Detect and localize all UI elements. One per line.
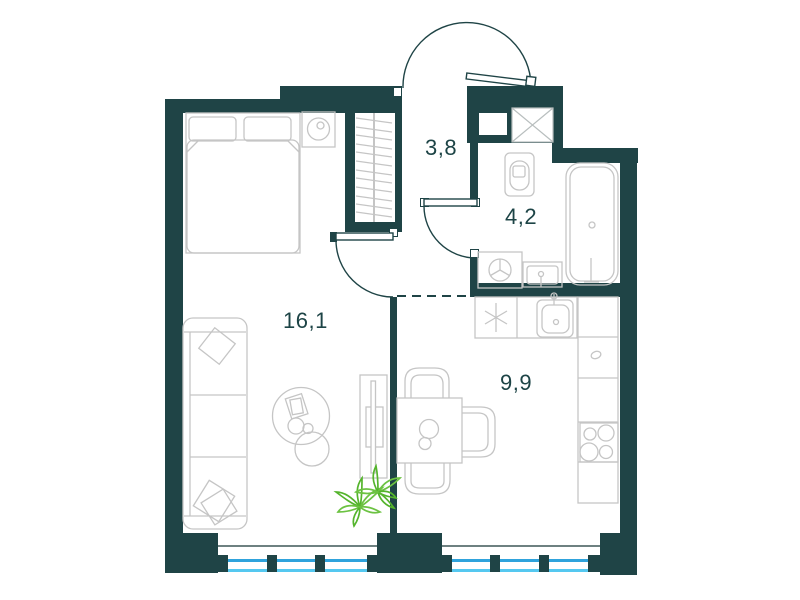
living-door-stop <box>330 232 337 242</box>
living-room-door <box>336 233 393 297</box>
sofa-icon <box>183 318 247 529</box>
wall-pillar-bottom-left <box>165 533 218 573</box>
wall-wardrobe-left <box>345 113 355 232</box>
wall-top-raised <box>280 86 402 113</box>
wall-top-left <box>165 99 280 113</box>
floor-plan: 16,1 3,8 4,2 9,9 <box>0 0 800 600</box>
entrance-jamb <box>393 87 402 97</box>
nightstand-icon <box>302 112 335 147</box>
wall-bathroom-west-lower <box>470 257 478 283</box>
window-glass-left <box>218 559 377 562</box>
bath-door-jamb-right <box>471 198 480 207</box>
wall-niche <box>479 113 507 135</box>
bath-door-jamb-left <box>420 198 429 207</box>
tv-stand-icon <box>360 375 387 478</box>
bath-door-jamb-bottom <box>470 249 479 258</box>
wall-wardrobe-right <box>395 113 402 232</box>
wall-bathroom-south <box>470 283 637 297</box>
wall-pillar-bottom-middle <box>377 533 442 573</box>
window-mullion <box>588 555 600 572</box>
wall-pillar-bottom-right <box>600 533 637 575</box>
coffee-table-icon <box>273 388 330 467</box>
room-area-label-hallway: 3,8 <box>425 135 457 161</box>
window-mullion <box>218 555 228 572</box>
window-mullion <box>267 555 277 572</box>
toilet-icon <box>505 153 534 196</box>
wall-left <box>165 99 183 573</box>
wardrobe-icon <box>356 113 392 222</box>
window-mullion <box>490 555 500 572</box>
kitchen-counter-icon <box>475 293 618 503</box>
window-glass-right <box>442 559 600 562</box>
wall-bathroom-west-upper <box>470 143 478 199</box>
window-glass-left-outer <box>218 569 377 572</box>
window-mullion <box>315 555 325 572</box>
window-mullion <box>367 555 377 572</box>
wall-kitchen-living <box>390 297 397 533</box>
living-door-jamb <box>389 228 398 237</box>
entrance-door <box>403 23 536 88</box>
room-area-label-kitchen: 9,9 <box>500 370 532 396</box>
window-mullion <box>539 555 549 572</box>
dining-table-icon <box>397 368 495 494</box>
bathtub-icon <box>566 163 618 285</box>
bed-icon <box>186 113 300 253</box>
wall-right <box>620 152 637 533</box>
room-area-label-bathroom: 4,2 <box>505 204 537 230</box>
window-mullion <box>442 555 452 572</box>
room-area-label-living: 16,1 <box>283 308 328 334</box>
window-glass-right-outer <box>442 569 600 572</box>
